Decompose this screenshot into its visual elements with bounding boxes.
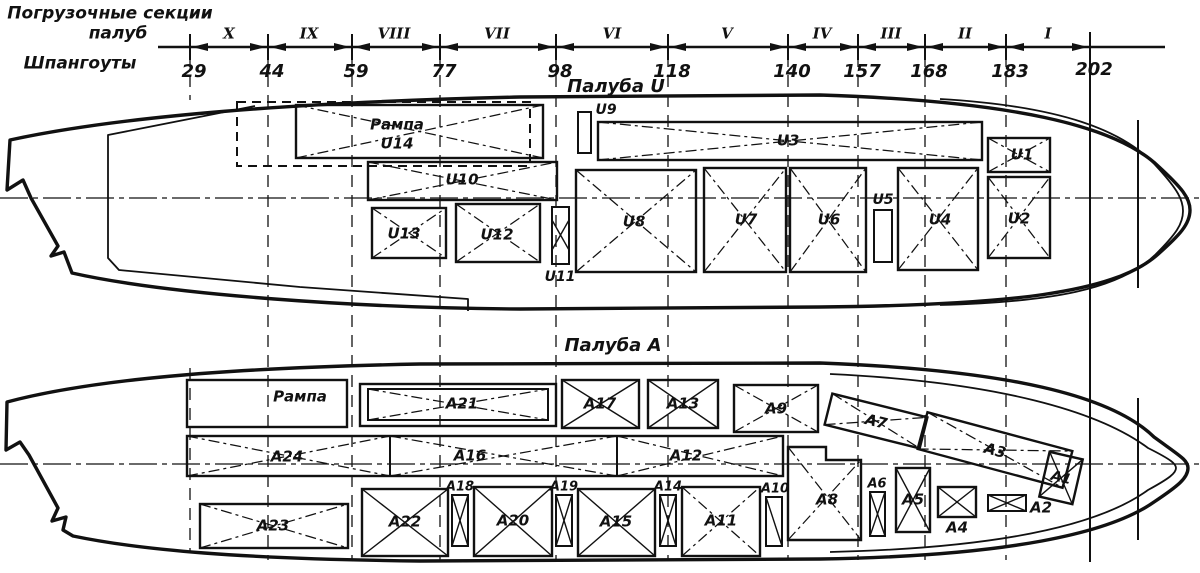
section-label-u11: U11 — [545, 270, 576, 284]
section-label-a12: A12 — [670, 449, 702, 464]
section-label-a5: A5 — [902, 493, 924, 508]
section-numeral-viii: VIII — [378, 27, 411, 42]
section-label-u2: U2 — [1008, 212, 1031, 227]
frame-number-44: 44 — [259, 63, 284, 81]
section-u11 — [552, 207, 569, 264]
section-label-u6: U6 — [818, 213, 841, 228]
section-label-u1: U1 — [1011, 148, 1034, 163]
section-label-a4: A4 — [946, 521, 968, 536]
section-label-a22: A22 — [389, 515, 421, 530]
section-label-a9: A9 — [765, 402, 787, 417]
section-label-a8: A8 — [816, 493, 838, 508]
ramp-label-a: Рампа — [273, 390, 327, 405]
section-u9 — [578, 112, 591, 153]
section-numeral-vi: VI — [603, 27, 622, 42]
section-label-a21: A21 — [446, 397, 478, 412]
frame-number-29: 29 — [181, 63, 206, 81]
section-numeral-iii: III — [880, 27, 901, 42]
section-numeral-ix: IX — [300, 27, 319, 42]
ramp-label-u: Рампа — [370, 118, 424, 133]
loading-sections-label-line2: палуб — [89, 26, 148, 43]
section-label-u4: U4 — [929, 213, 952, 228]
section-a18 — [452, 495, 468, 546]
section-numeral-vii: VII — [484, 27, 510, 42]
frame-number-140: 140 — [773, 63, 811, 81]
deck-u-hull — [0, 95, 1200, 311]
section-label-a20: A20 — [497, 514, 529, 529]
section-numeral-v: V — [721, 27, 733, 42]
section-label-a19: A19 — [550, 481, 578, 494]
section-label-u14: U14 — [380, 137, 413, 152]
frame-number-157: 157 — [843, 63, 881, 81]
deck-a-title: Палуба А — [564, 337, 661, 355]
section-label-a11: A11 — [705, 514, 737, 529]
frame-number-168: 168 — [910, 63, 948, 81]
section-label-a10: A10 — [761, 483, 789, 496]
frame-number-202: 202 — [1075, 61, 1113, 79]
section-label-a14: A14 — [654, 481, 682, 494]
section-label-u7: U7 — [735, 213, 758, 228]
frame-number-59: 59 — [343, 63, 368, 81]
section-label-a23: A23 — [257, 519, 289, 534]
section-label-u9: U9 — [595, 103, 616, 117]
section-numeral-x: X — [223, 27, 235, 42]
section-a2 — [988, 495, 1026, 511]
section-a19 — [556, 495, 572, 546]
loading-sections-label-line1: Погрузочные секции — [7, 6, 212, 23]
section-label-u10: U10 — [445, 173, 478, 188]
section-numeral-iv: IV — [813, 27, 832, 42]
section-label-a6: A6 — [867, 478, 886, 491]
section-label-a17: A17 — [584, 397, 616, 412]
section-a6 — [870, 492, 885, 536]
section-label-a16: A16 — [454, 449, 486, 464]
section-label-u5: U5 — [872, 193, 893, 207]
section-u5 — [874, 210, 892, 262]
section-label-a15: A15 — [600, 515, 632, 530]
section-label-a24: A24 — [271, 450, 303, 465]
section-a4 — [938, 487, 976, 517]
section-label-u13: U13 — [387, 227, 420, 242]
section-numeral-ii: II — [958, 27, 972, 42]
deck-u-sections — [237, 102, 1050, 272]
frames-label: Шпангоуты — [24, 56, 137, 73]
section-label-u3: U3 — [777, 134, 800, 149]
ship-deck-plan: Погрузочные секции палуб Шпангоуты 29 44… — [0, 0, 1200, 573]
section-label-a18: A18 — [446, 481, 474, 494]
section-a10 — [766, 497, 782, 546]
section-label-a1: A1 — [1049, 469, 1072, 487]
section-label-u8: U8 — [623, 215, 646, 230]
frame-number-183: 183 — [991, 63, 1029, 81]
frame-number-77: 77 — [431, 63, 456, 81]
deck-a-hull — [0, 363, 1200, 561]
deck-u-title: Палуба U — [567, 78, 665, 96]
section-label-u12: U12 — [480, 228, 513, 243]
section-label-a2: A2 — [1030, 501, 1052, 516]
section-label-a13: A13 — [667, 397, 699, 412]
section-numeral-i: I — [1044, 27, 1051, 42]
